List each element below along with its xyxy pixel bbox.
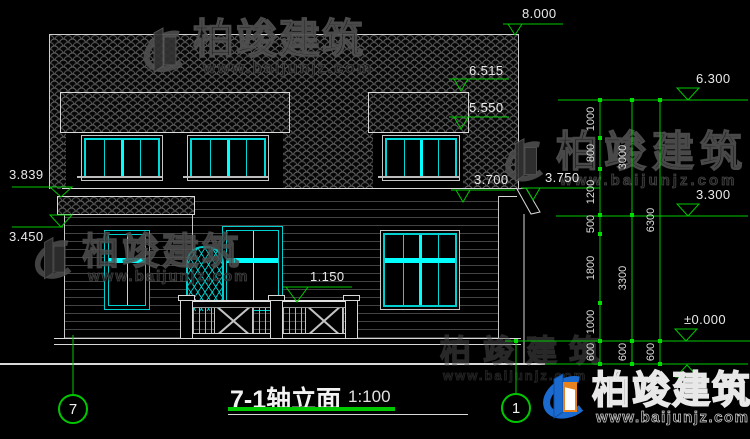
title-underline-green [228, 407, 395, 411]
chain-inner-seg-3: 500 [585, 215, 597, 233]
elev-label-right-mid: 3.300 [696, 187, 731, 202]
chain-inner-seg-0: 1000 [585, 107, 597, 131]
brand-logo-text: 柏竣建筑 [592, 372, 750, 410]
axis-bubble-1-label: 1 [512, 400, 520, 417]
axis-bubble-1: 1 [501, 393, 531, 423]
chain-inner-seg-2: 1200 [585, 180, 597, 204]
dimension-lines [12, 24, 750, 395]
elev-label-ridge: 8.000 [522, 6, 557, 21]
chain-inner-seg-4: 1800 [585, 256, 597, 280]
elev-label-eave-overhang: 3.750 [545, 170, 580, 185]
brand-logo-url: www.baijunjz.com [596, 410, 749, 425]
elev-label-eave-right: 3.700 [474, 172, 509, 187]
right-eave-overhang [517, 188, 540, 363]
axis-bubble-7-label: 7 [69, 401, 77, 418]
elev-label-left-lower: 3.450 [9, 229, 44, 244]
elev-label-zero: ±0.000 [684, 312, 726, 327]
cad-elevation-drawing: 柏竣建筑 www.baijunjz.com 柏竣建筑 www.baijunjz.… [0, 0, 750, 439]
drawing-scale: 1:100 [348, 387, 391, 407]
axis-bubble-7: 7 [58, 394, 88, 424]
chain-middle-seg-2: 600 [617, 343, 629, 361]
brand-logo-color-icon [533, 368, 591, 430]
title-underline-white [228, 414, 468, 415]
elev-label-right-top: 6.300 [696, 71, 731, 86]
chain-middle-seg-1: 3300 [617, 266, 629, 290]
chain-outer-seg-0: 6300 [645, 208, 657, 232]
chain-inner-seg-5: 1000 [585, 310, 597, 334]
chain-inner-seg-6: 600 [585, 343, 597, 361]
elev-label-dormer-top: 6.515 [469, 63, 504, 78]
elev-label-left-upper: 3.839 [9, 167, 44, 182]
chain-outer-seg-1: 600 [645, 343, 657, 361]
elev-label-railing: 1.150 [310, 269, 345, 284]
chain-middle-seg-0: 3000 [617, 145, 629, 169]
chain-inner-seg-1: 800 [585, 144, 597, 162]
elev-label-dormer-eave: 5.550 [469, 100, 504, 115]
